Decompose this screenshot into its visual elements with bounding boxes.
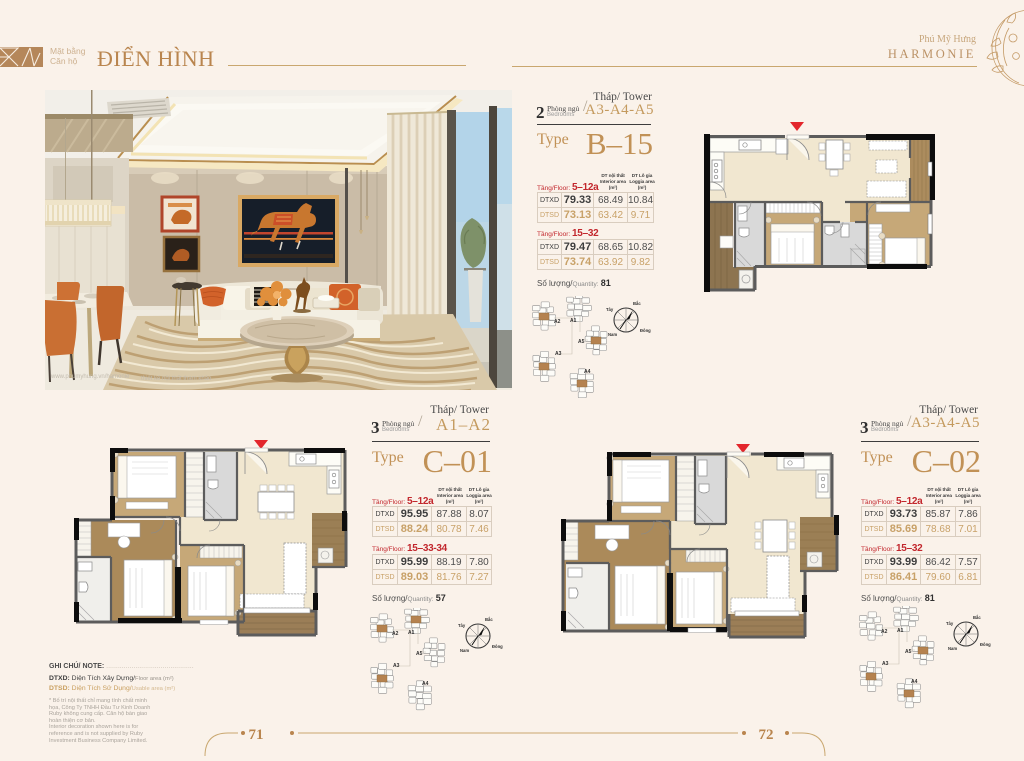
svg-text:thiết kế nội thất tham khảo: thiết kế nội thất tham khảo — [141, 376, 212, 382]
svg-text:Tây: Tây — [606, 307, 614, 312]
svg-text:Nam: Nam — [948, 646, 957, 651]
svg-text:Nam: Nam — [460, 648, 469, 653]
svg-text:72: 72 — [759, 727, 774, 743]
svg-text:A2: A2 — [881, 629, 888, 635]
svg-text:Tây: Tây — [946, 621, 954, 626]
svg-text:Bắc: Bắc — [633, 301, 641, 306]
svg-text:A3: A3 — [393, 663, 400, 669]
svg-text:A1: A1 — [897, 628, 904, 634]
svg-text:Đông: Đông — [980, 642, 991, 647]
svg-text:Bắc: Bắc — [485, 617, 493, 622]
svg-text:Tây: Tây — [458, 623, 466, 628]
svg-text:A5: A5 — [578, 339, 585, 345]
svg-text:A1: A1 — [570, 318, 577, 324]
svg-text:71: 71 — [249, 727, 264, 743]
svg-text:A1: A1 — [408, 630, 415, 636]
svg-text:A2: A2 — [554, 319, 561, 325]
svg-text:A4: A4 — [584, 369, 591, 375]
svg-text:Nam: Nam — [608, 332, 617, 337]
svg-text:Đông: Đông — [492, 644, 503, 649]
svg-text:A3: A3 — [882, 661, 889, 667]
svg-text:A5: A5 — [416, 651, 423, 657]
svg-text:Bắc: Bắc — [973, 615, 981, 620]
svg-text:A4: A4 — [422, 681, 429, 687]
svg-text:www.phumyhung.vn/hamonie: www.phumyhung.vn/hamonie — [50, 374, 130, 380]
svg-text:A4: A4 — [911, 679, 918, 685]
svg-text:Đông: Đông — [640, 328, 651, 333]
svg-text:A5: A5 — [905, 649, 912, 655]
svg-text:A2: A2 — [392, 631, 399, 637]
svg-text:A3: A3 — [555, 351, 562, 357]
